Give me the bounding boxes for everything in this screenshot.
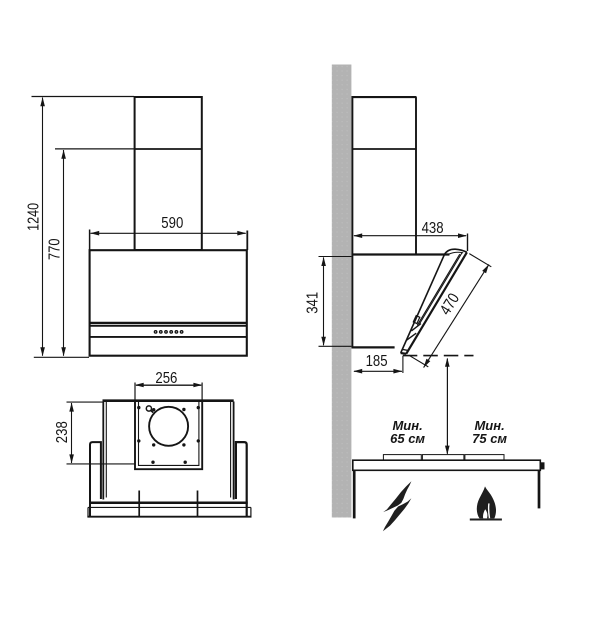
svg-text:341: 341 — [304, 292, 321, 314]
svg-text:185: 185 — [366, 353, 388, 370]
svg-text:1240: 1240 — [25, 203, 42, 231]
svg-text:438: 438 — [422, 220, 444, 237]
svg-text:256: 256 — [155, 370, 177, 387]
svg-text:590: 590 — [161, 215, 183, 232]
svg-text:770: 770 — [46, 238, 63, 260]
svg-text:65 см: 65 см — [390, 431, 425, 446]
svg-text:75 см: 75 см — [472, 431, 507, 446]
svg-text:238: 238 — [54, 421, 71, 443]
